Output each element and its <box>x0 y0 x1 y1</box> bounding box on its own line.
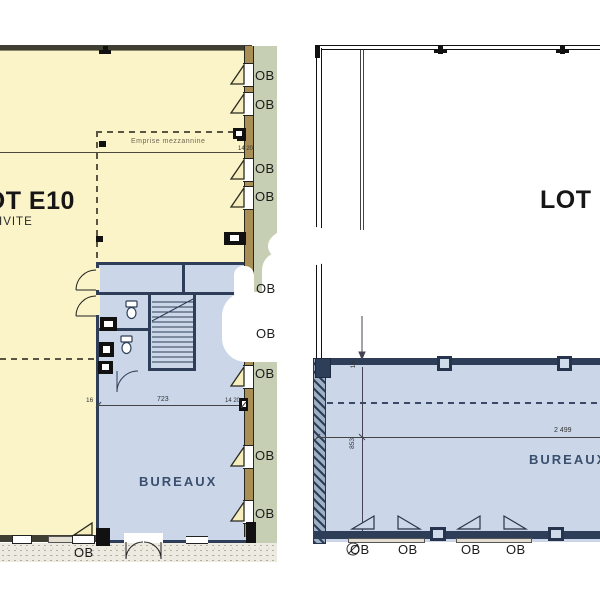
window-label: OB <box>350 542 370 557</box>
window-opening <box>12 535 32 544</box>
window-opening <box>243 500 253 524</box>
window-opening <box>243 365 253 389</box>
sink-fixture <box>100 317 117 331</box>
right-room-label: BUREAUX <box>529 452 600 467</box>
window-label: OB <box>255 97 275 112</box>
window-opening <box>186 536 208 544</box>
interior-wall <box>182 262 185 294</box>
window-label: OB <box>506 542 526 557</box>
dim-width-right: 2 499 <box>554 427 572 434</box>
window-label: OB <box>255 189 275 204</box>
right-office-room <box>313 358 600 542</box>
corner-column-marker <box>315 45 320 58</box>
window-label: OB <box>255 506 275 521</box>
window-label: OB <box>256 326 276 341</box>
right-plan-left-wall <box>316 48 322 358</box>
door-opening <box>94 268 100 290</box>
mezzanine-dim: 14 20 <box>238 146 253 152</box>
right-room-corner-post <box>315 358 331 378</box>
left-plan-top-wall <box>0 45 252 51</box>
redaction-blob-shape <box>268 226 342 266</box>
column-marker <box>438 45 443 54</box>
office-door-opening <box>124 533 163 543</box>
interior-wall <box>148 368 196 371</box>
window-label: OB <box>256 281 276 296</box>
window-opening <box>243 186 253 210</box>
left-lot-title: LOT E10 <box>0 187 75 216</box>
mezzanine-dashed-line-bottom <box>0 358 96 360</box>
column-marker <box>103 46 108 54</box>
dimension-line <box>98 405 244 406</box>
dim-depth-right: 853 <box>349 438 356 449</box>
dim-width: 723 <box>157 396 169 403</box>
left-zone-label: ACTIVITE <box>0 216 33 228</box>
office-corner-post <box>96 528 110 546</box>
door-opening <box>94 295 100 315</box>
ground-texture <box>0 543 277 562</box>
floor-plan-canvas: LOT E10 ACTIVITE Emprise mezzannine 14 2… <box>0 0 600 600</box>
window-opening <box>243 92 253 116</box>
window-label: OB <box>255 366 275 381</box>
right-lot-title: LOT E <box>540 186 600 215</box>
window-opening <box>243 63 253 87</box>
window-label: OB <box>74 545 94 560</box>
right-room-dashed-line <box>327 402 600 404</box>
column-square <box>430 527 446 541</box>
window-label: OB <box>255 161 275 176</box>
left-room-label: BUREAUX <box>139 474 217 489</box>
mezzanine-dashed-line-top <box>96 131 240 133</box>
wall-bracket <box>224 232 246 245</box>
window-opening <box>243 445 253 469</box>
interior-grid-line <box>360 50 364 230</box>
window-opening <box>243 158 253 182</box>
wall-bracket <box>233 128 246 139</box>
right-vertical-dim-line <box>362 367 363 531</box>
window-label: OB <box>398 542 418 557</box>
mezzanine-marker <box>99 141 106 147</box>
column-square <box>548 527 564 541</box>
dim-wall-right: 14 20 <box>225 398 240 404</box>
right-room-left-wall <box>313 358 326 544</box>
right-dimension-line <box>317 437 600 438</box>
mezzanine-floor-line <box>0 152 244 153</box>
window-label: OB <box>255 68 275 83</box>
window-label: OB <box>461 542 481 557</box>
column-marker <box>560 45 565 54</box>
window-opening <box>72 535 95 544</box>
window-label: OB <box>255 448 275 463</box>
interior-wall <box>148 295 151 371</box>
facade-corner-post <box>246 522 256 543</box>
mezzanine-marker <box>96 236 103 242</box>
dim-wall-left: 16 <box>86 397 93 404</box>
column-square <box>557 356 572 371</box>
wall-bracket <box>239 398 248 411</box>
dim-wall-right-plan: 16 <box>350 361 357 368</box>
column-square <box>437 356 452 371</box>
interior-wall <box>193 295 196 371</box>
sink-fixture <box>98 361 113 374</box>
mezzanine-label: Emprise mezzannine <box>131 138 205 145</box>
interior-wall <box>96 292 250 295</box>
sink-fixture <box>99 342 114 357</box>
